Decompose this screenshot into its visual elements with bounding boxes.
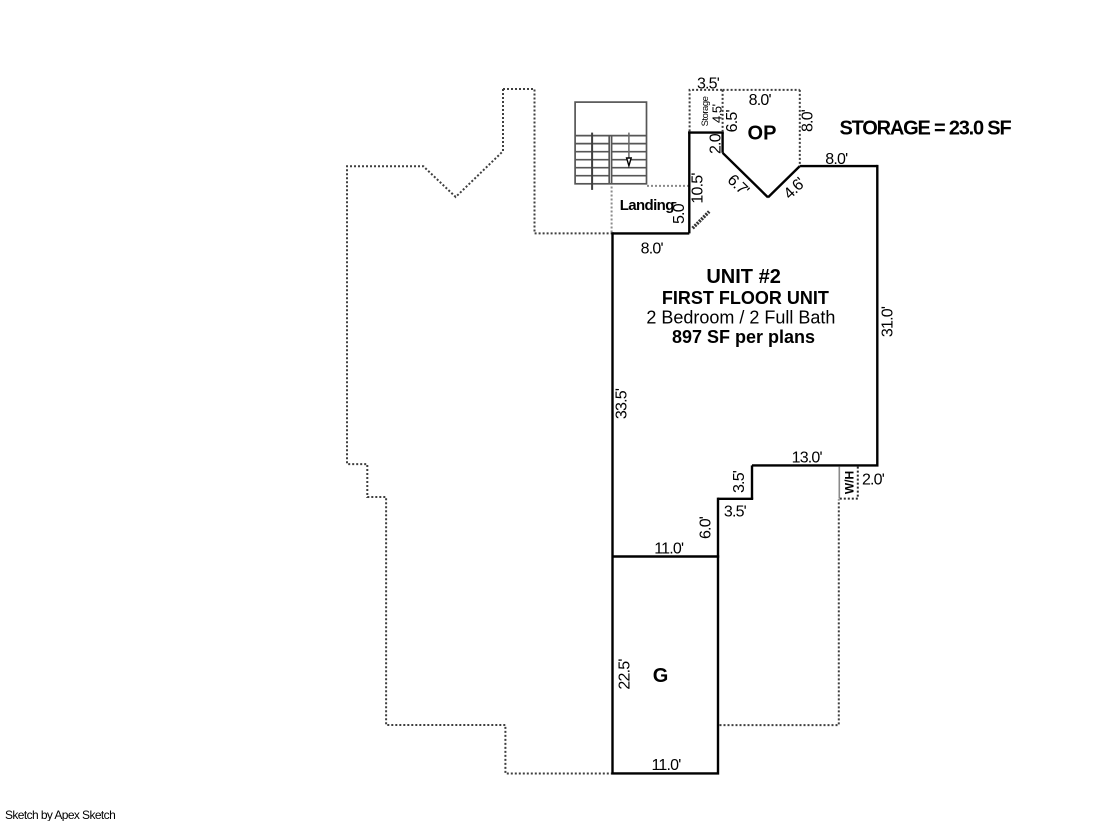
svg-text:8.0': 8.0': [800, 109, 817, 132]
svg-text:Landing: Landing: [620, 197, 675, 214]
svg-text:897 SF per plans: 897 SF per plans: [672, 327, 815, 347]
svg-text:8.0': 8.0': [749, 92, 772, 109]
svg-text:Storage: Storage: [700, 96, 711, 126]
svg-text:8.0': 8.0': [825, 151, 848, 168]
svg-text:G: G: [653, 665, 669, 687]
svg-text:FIRST FLOOR UNIT: FIRST FLOOR UNIT: [662, 288, 829, 308]
svg-text:13.0': 13.0': [792, 450, 823, 467]
svg-text:6.0': 6.0': [698, 516, 715, 539]
svg-text:UNIT #2: UNIT #2: [706, 266, 780, 288]
svg-text:3.5': 3.5': [724, 504, 747, 521]
svg-text:2.0': 2.0': [707, 131, 724, 154]
svg-text:W/H: W/H: [843, 471, 857, 494]
svg-text:2 Bedroom / 2 Full Bath: 2 Bedroom / 2 Full Bath: [646, 308, 835, 328]
svg-text:STORAGE = 23.0 SF: STORAGE = 23.0 SF: [840, 118, 1012, 140]
svg-text:3.5': 3.5': [697, 76, 720, 93]
svg-text:OP: OP: [748, 123, 777, 145]
svg-text:6.5': 6.5': [724, 110, 741, 133]
svg-text:33.5': 33.5': [614, 388, 631, 419]
svg-text:3.5': 3.5': [731, 470, 748, 493]
svg-text:10.5': 10.5': [690, 173, 707, 204]
svg-text:22.5': 22.5': [617, 659, 634, 690]
svg-text:2.0': 2.0': [862, 472, 885, 489]
svg-text:8.0': 8.0': [641, 241, 664, 258]
svg-text:4.5': 4.5': [709, 104, 724, 123]
svg-text:11.0': 11.0': [651, 757, 681, 774]
svg-text:Sketch by Apex Sketch: Sketch by Apex Sketch: [5, 808, 115, 821]
svg-text:31.0': 31.0': [880, 306, 897, 337]
svg-text:11.0': 11.0': [654, 541, 684, 558]
